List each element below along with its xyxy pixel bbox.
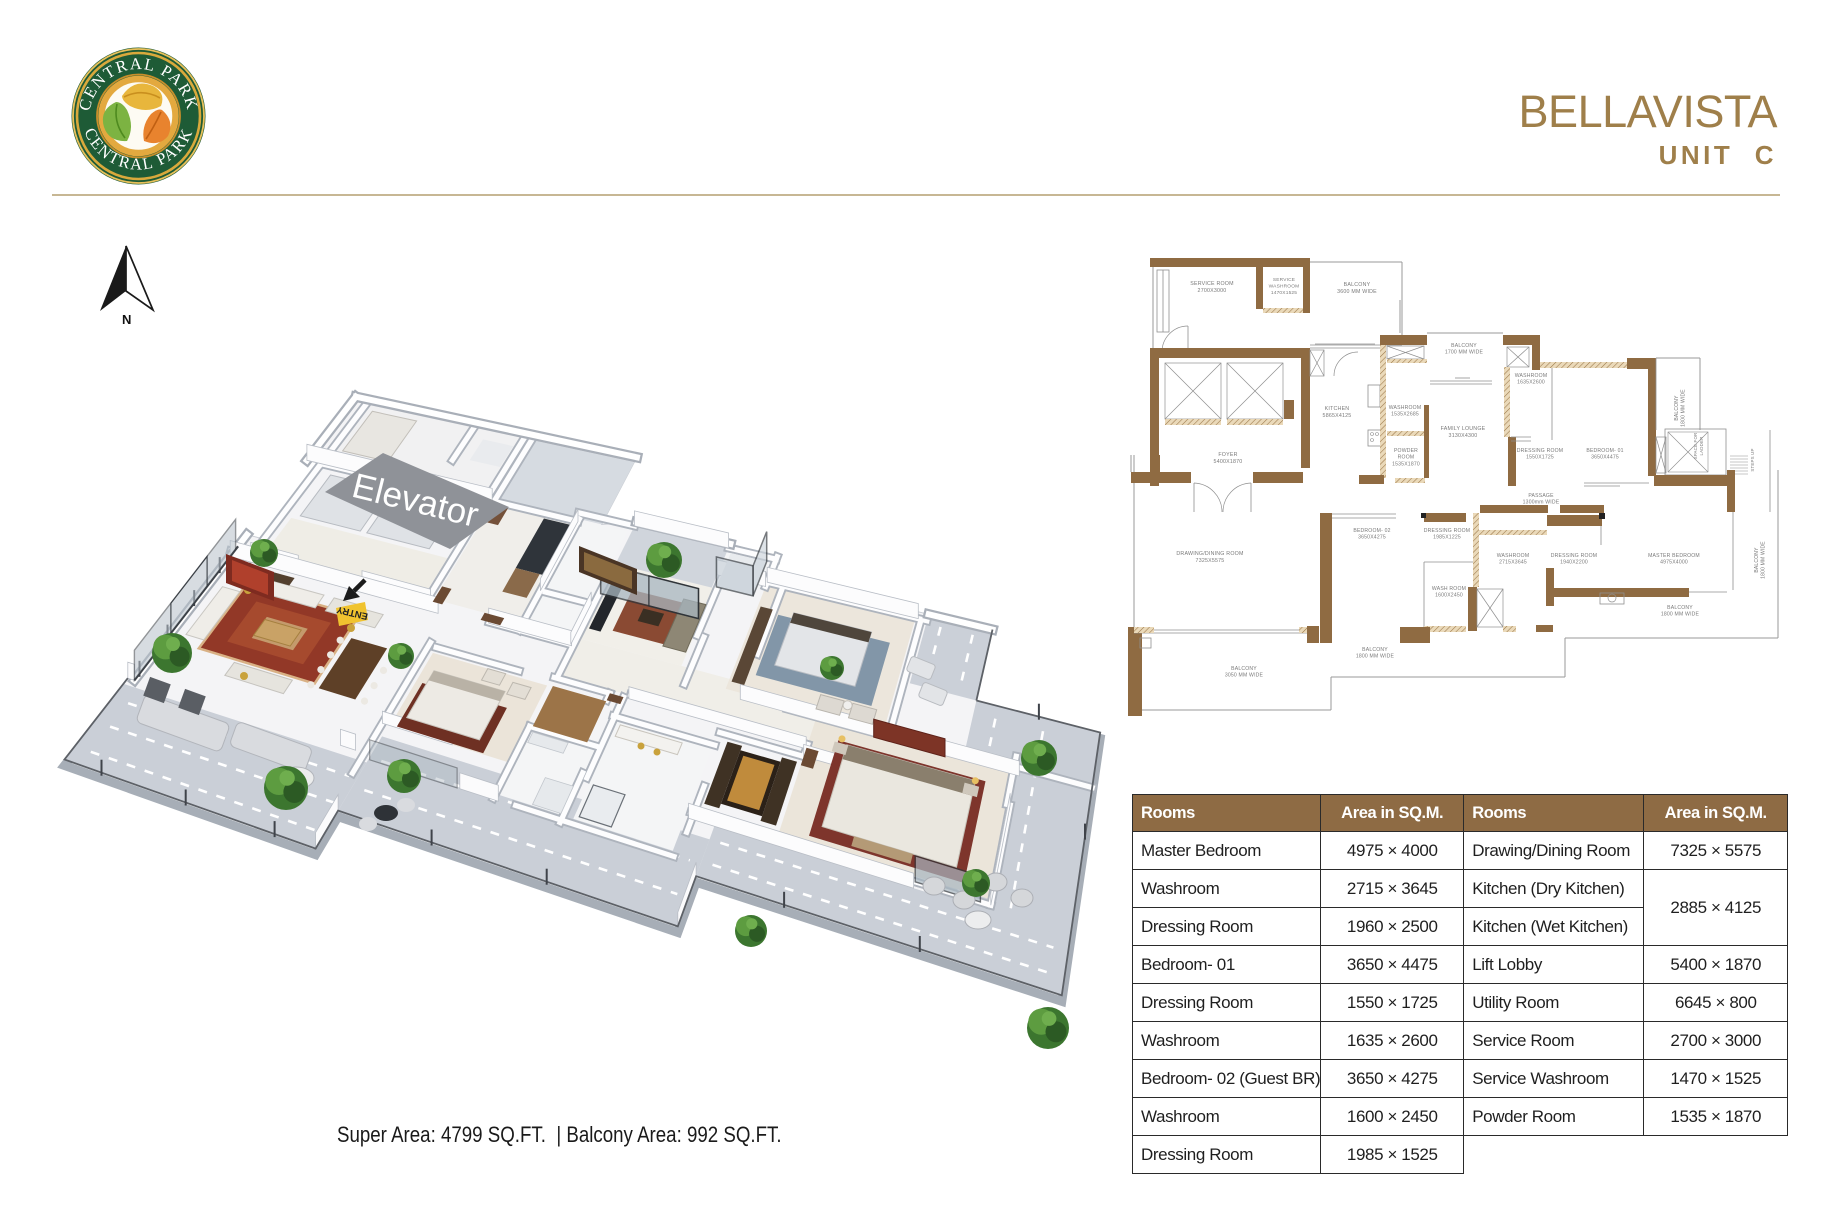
svg-text:FOYER5400X1870: FOYER5400X1870 [1214, 452, 1243, 465]
svg-text:STEPS UP: STEPS UP [1750, 448, 1755, 471]
svg-text:N: N [122, 312, 131, 326]
svg-text:BEDROOM- 023650X4275: BEDROOM- 023650X4275 [1353, 528, 1390, 541]
svg-text:BALCONY1800 MM WIDE: BALCONY1800 MM WIDE [1661, 605, 1700, 618]
svg-text:DRESSING ROOM1985X1225: DRESSING ROOM1985X1225 [1424, 528, 1470, 541]
svg-text:MASTER BEDROOM4975X4000: MASTER BEDROOM4975X4000 [1648, 553, 1700, 566]
svg-text:BALCONY1800 MM WIDE: BALCONY1800 MM WIDE [1754, 541, 1767, 579]
svg-text:BALCONY1700 MM WIDE: BALCONY1700 MM WIDE [1445, 343, 1484, 356]
svg-text:BALCONY1800 MM WIDE: BALCONY1800 MM WIDE [1674, 389, 1687, 427]
svg-text:KITCHEN5865X4125: KITCHEN5865X4125 [1323, 406, 1352, 419]
svg-text:DRAWING/DINING ROOM7325X5575: DRAWING/DINING ROOM7325X5575 [1176, 551, 1243, 564]
svg-text:BALCONY3050 MM WIDE: BALCONY3050 MM WIDE [1225, 666, 1264, 679]
svg-text:SERVICEWASHROOM1470X1525: SERVICEWASHROOM1470X1525 [1269, 277, 1300, 296]
svg-text:SERVICE ROOM2700X3000: SERVICE ROOM2700X3000 [1190, 281, 1234, 294]
svg-text:WASHROOM1635X2600: WASHROOM1635X2600 [1515, 373, 1548, 386]
svg-text:BEDROOM- 013650X4475: BEDROOM- 013650X4475 [1586, 448, 1623, 461]
svg-text:BALCONY1800 MM WIDE: BALCONY1800 MM WIDE [1356, 647, 1395, 660]
svg-text:POWDERROOM1535X1870: POWDERROOM1535X1870 [1392, 448, 1420, 467]
svg-text:BALCONY3600 MM WIDE: BALCONY3600 MM WIDE [1337, 282, 1377, 295]
svg-text:DRESSING ROOM1940X2200: DRESSING ROOM1940X2200 [1551, 553, 1597, 566]
svg-text:WASHROOM2715X3645: WASHROOM2715X3645 [1497, 553, 1530, 566]
svg-text:WASH ROOM1600X2450: WASH ROOM1600X2450 [1432, 586, 1466, 599]
svg-text:WASHROOM1535X2685: WASHROOM1535X2685 [1389, 405, 1422, 418]
svg-text:SPACE FORLADDER: SPACE FORLADDER [1693, 433, 1704, 460]
svg-text:DRESSING ROOM1550X1725: DRESSING ROOM1550X1725 [1517, 448, 1563, 461]
svg-text:PASSAGE1300mm WIDE: PASSAGE1300mm WIDE [1523, 493, 1560, 506]
svg-text:FAMILY LOUNGE3130X4300: FAMILY LOUNGE3130X4300 [1441, 426, 1486, 439]
